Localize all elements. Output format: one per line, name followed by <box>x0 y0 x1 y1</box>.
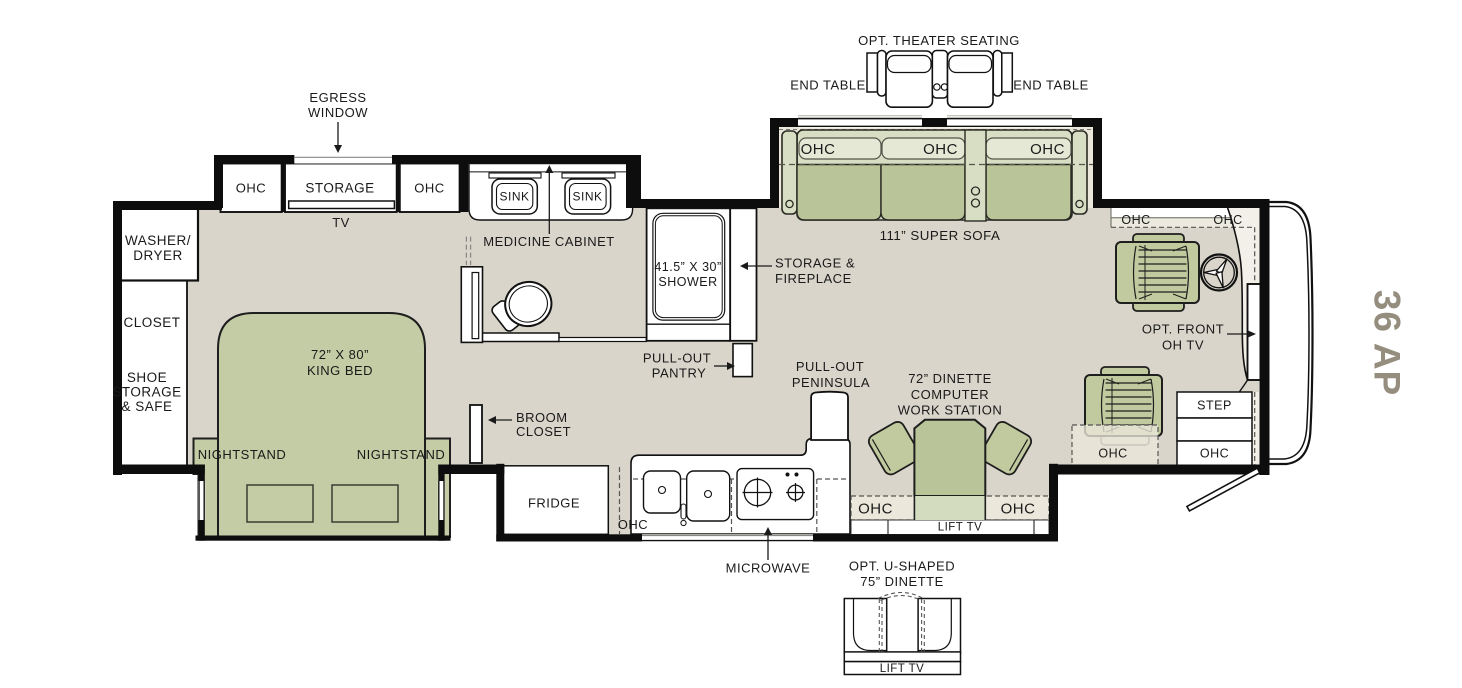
svg-text:72” X 80”: 72” X 80” <box>311 347 369 362</box>
svg-text:PULL-OUT: PULL-OUT <box>643 351 711 366</box>
svg-text:OHC: OHC <box>1200 447 1229 461</box>
svg-text:OPT. FRONT: OPT. FRONT <box>1142 322 1224 337</box>
svg-text:STORAGE: STORAGE <box>112 385 181 400</box>
svg-text:KING BED: KING BED <box>307 363 373 378</box>
svg-text:WASHER/: WASHER/ <box>125 233 191 248</box>
svg-text:MICROWAVE: MICROWAVE <box>726 561 811 576</box>
svg-text:OH TV: OH TV <box>1162 338 1204 353</box>
svg-text:TV: TV <box>332 215 350 230</box>
svg-text:OHC: OHC <box>1121 213 1150 227</box>
svg-text:FRIDGE: FRIDGE <box>528 496 580 511</box>
svg-text:STORAGE: STORAGE <box>305 181 374 196</box>
svg-text:OHC: OHC <box>858 501 893 518</box>
svg-text:SHOE: SHOE <box>127 370 167 385</box>
svg-text:OHC: OHC <box>923 141 958 158</box>
svg-text:SINK: SINK <box>572 190 602 204</box>
svg-text:NIGHTSTAND: NIGHTSTAND <box>357 447 446 462</box>
svg-text:36 AP: 36 AP <box>1367 290 1408 396</box>
svg-text:OHC: OHC <box>414 181 444 196</box>
svg-text:NIGHTSTAND: NIGHTSTAND <box>198 447 287 462</box>
svg-text:75” DINETTE: 75” DINETTE <box>860 574 944 589</box>
svg-text:OHC: OHC <box>1001 501 1036 518</box>
svg-text:FIREPLACE: FIREPLACE <box>775 271 852 286</box>
svg-text:WINDOW: WINDOW <box>308 105 368 120</box>
svg-text:PULL-OUT: PULL-OUT <box>796 359 864 374</box>
svg-text:72” DINETTE: 72” DINETTE <box>908 371 992 386</box>
svg-text:OHC: OHC <box>801 141 836 158</box>
svg-text:OHC: OHC <box>618 517 648 532</box>
svg-text:MEDICINE CABINET: MEDICINE CABINET <box>483 234 615 249</box>
svg-text:LIFT TV: LIFT TV <box>938 522 983 534</box>
svg-text:CLOSET: CLOSET <box>516 424 571 439</box>
svg-text:END TABLE: END TABLE <box>790 78 866 93</box>
svg-text:PENINSULA: PENINSULA <box>792 375 870 390</box>
svg-text:OHC: OHC <box>236 181 266 196</box>
svg-text:COMPUTER: COMPUTER <box>911 387 989 402</box>
svg-text:111” SUPER SOFA: 111” SUPER SOFA <box>880 228 1001 243</box>
svg-text:SHOWER: SHOWER <box>658 275 717 289</box>
svg-text:41.5” X 30”: 41.5” X 30” <box>654 260 721 274</box>
svg-text:OHC: OHC <box>1030 141 1065 158</box>
svg-text:& SAFE: & SAFE <box>121 399 172 414</box>
svg-text:OPT. THEATER SEATING: OPT. THEATER SEATING <box>858 33 1020 48</box>
svg-text:OPT. U-SHAPED: OPT. U-SHAPED <box>849 559 955 574</box>
svg-text:OHC: OHC <box>1213 213 1242 227</box>
svg-text:END TABLE: END TABLE <box>1013 78 1089 93</box>
svg-text:OHC: OHC <box>1098 447 1127 461</box>
svg-text:BROOM: BROOM <box>516 410 568 425</box>
svg-text:STORAGE &: STORAGE & <box>775 256 855 271</box>
svg-text:CLOSET: CLOSET <box>123 315 180 330</box>
svg-text:SINK: SINK <box>499 190 529 204</box>
svg-text:WORK STATION: WORK STATION <box>898 403 1002 418</box>
svg-text:LIFT TV: LIFT TV <box>880 663 925 675</box>
svg-text:EGRESS: EGRESS <box>309 90 366 105</box>
svg-text:PANTRY: PANTRY <box>652 366 707 381</box>
svg-text:STEP: STEP <box>1197 399 1232 413</box>
svg-text:DRYER: DRYER <box>133 248 183 263</box>
